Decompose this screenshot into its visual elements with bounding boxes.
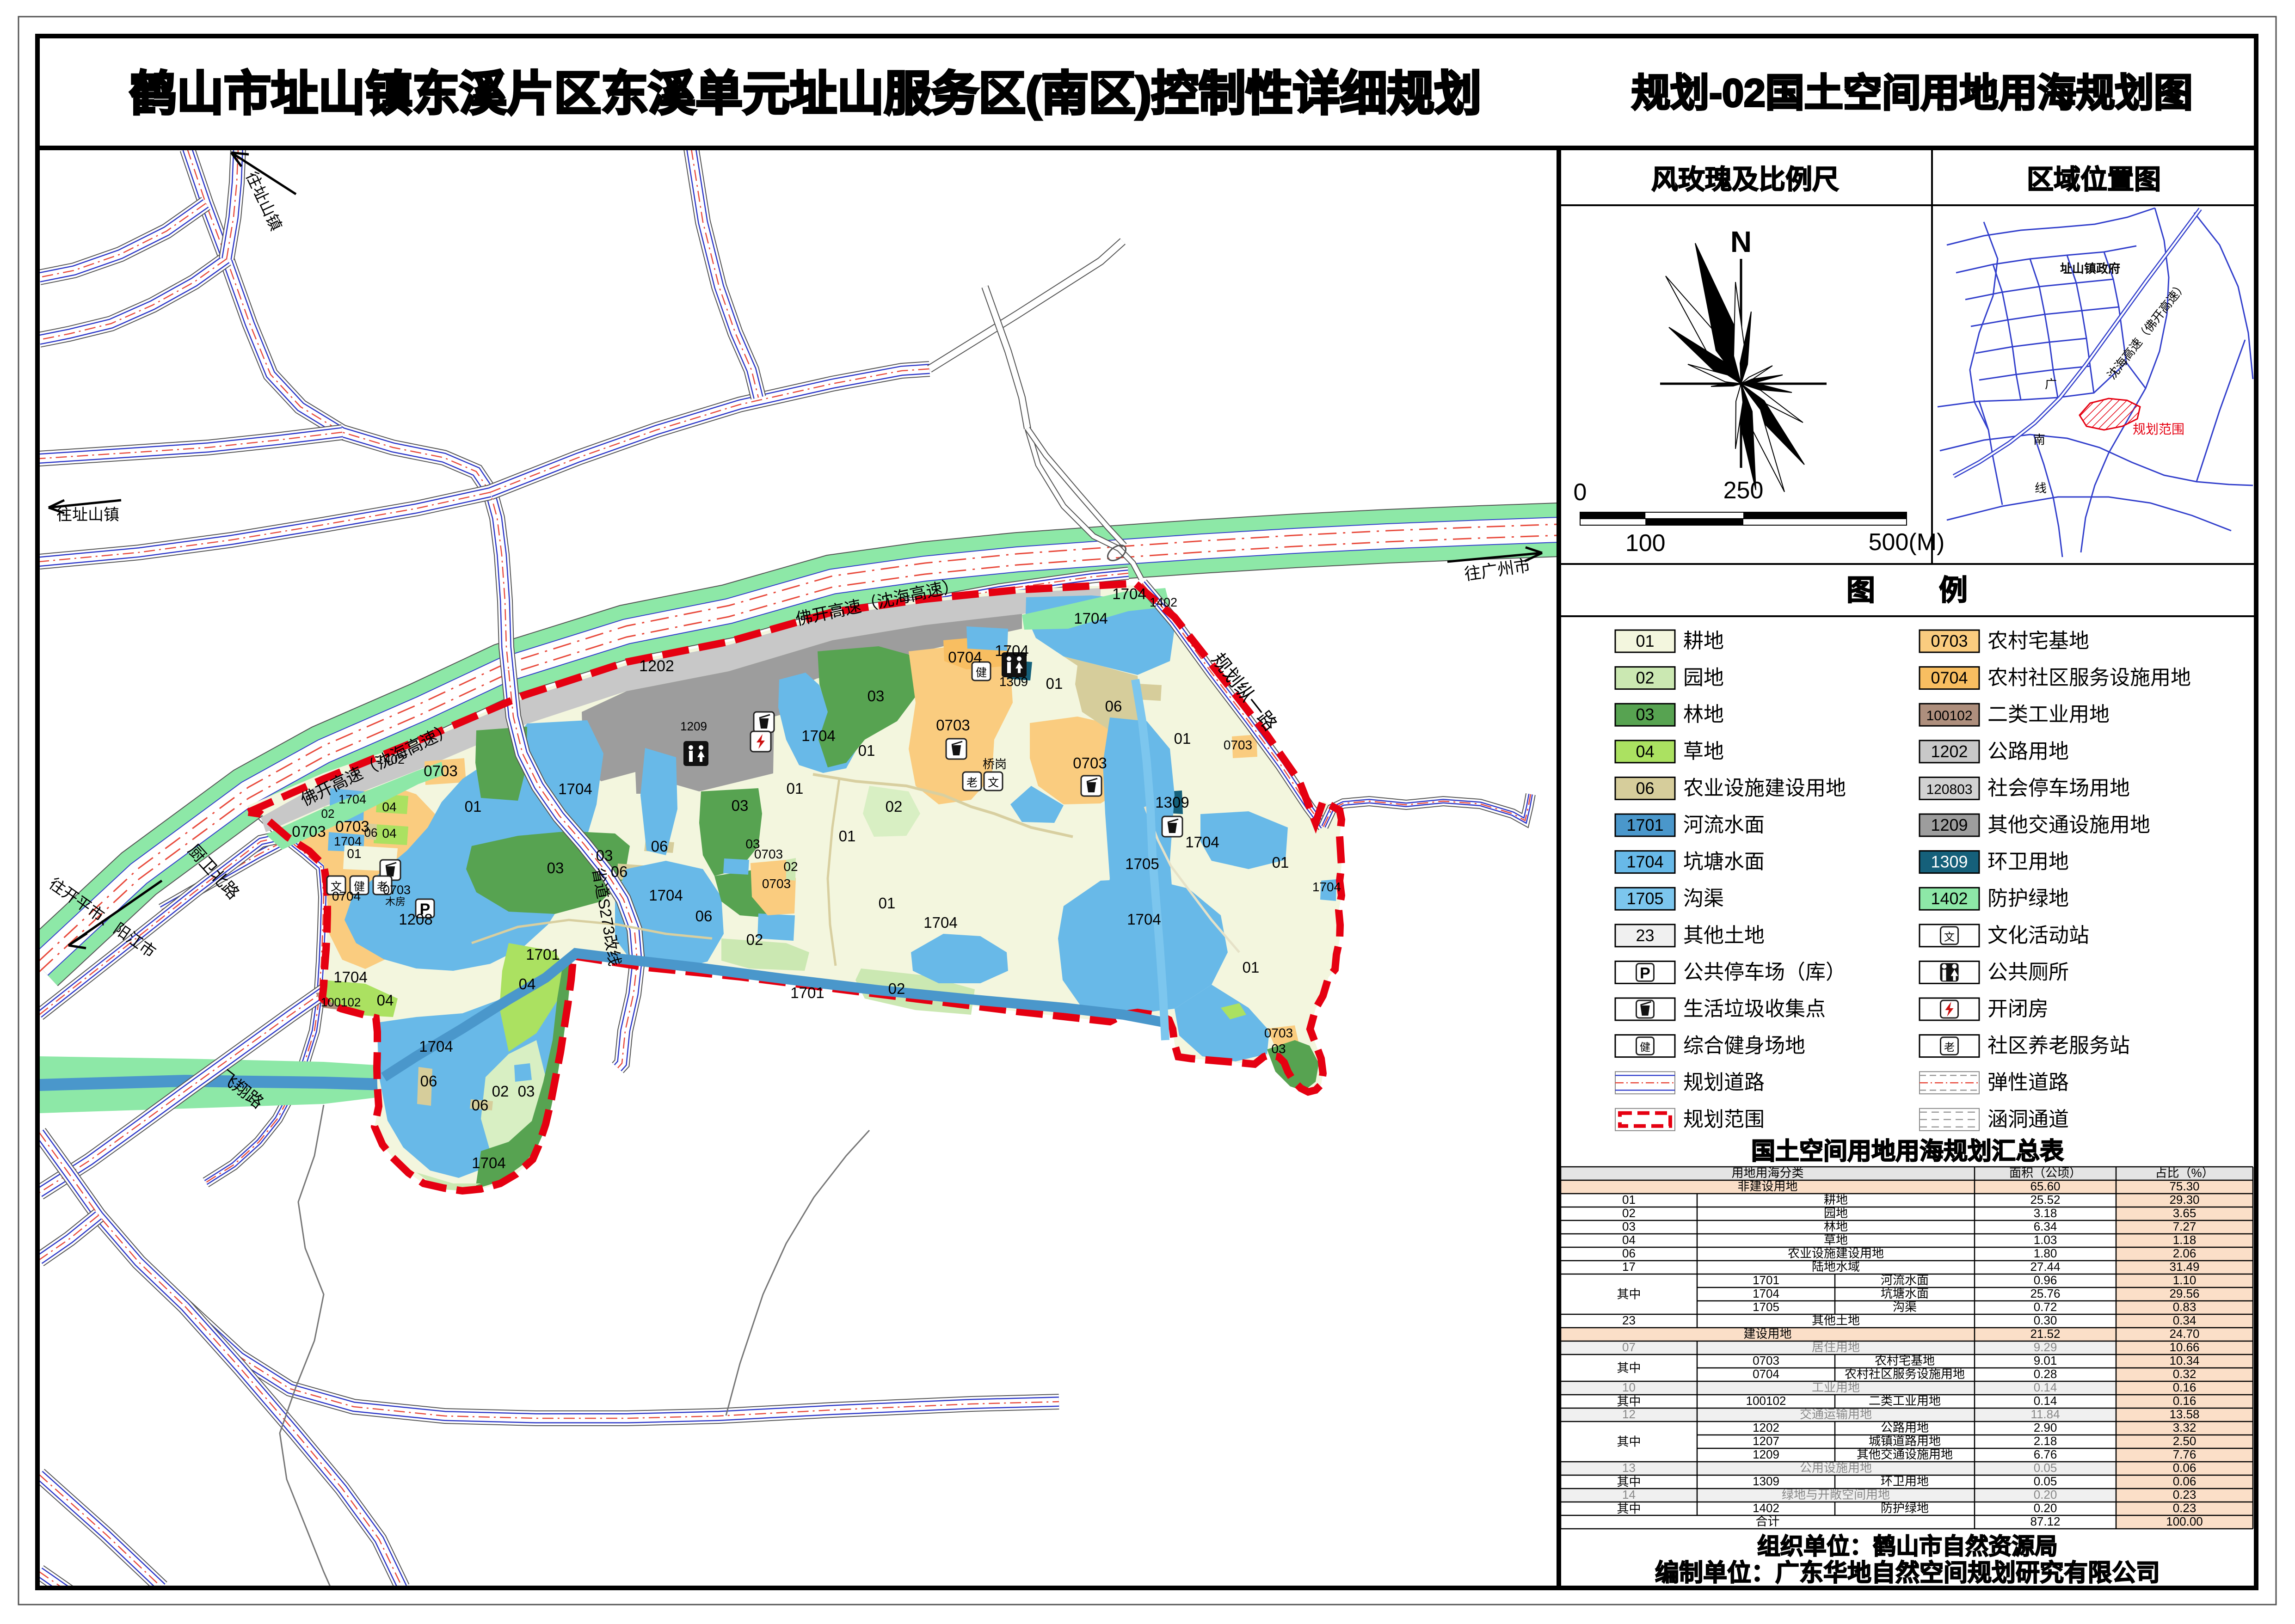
- svg-text:1.80: 1.80: [2034, 1246, 2057, 1260]
- svg-text:9.29: 9.29: [2034, 1340, 2057, 1354]
- svg-text:03: 03: [596, 847, 613, 864]
- svg-text:林地: 林地: [1824, 1220, 1848, 1233]
- svg-text:29.30: 29.30: [2169, 1193, 2199, 1207]
- svg-text:03: 03: [745, 837, 760, 851]
- svg-text:绿地与开敞空间用地: 绿地与开敞空间用地: [1782, 1488, 1890, 1501]
- svg-text:防护绿地: 防护绿地: [1987, 887, 2069, 910]
- svg-text:其中: 其中: [1617, 1435, 1641, 1449]
- svg-text:1208: 1208: [399, 911, 432, 928]
- svg-text:06: 06: [472, 1097, 489, 1114]
- svg-text:公用设施用地: 公用设施用地: [1800, 1461, 1872, 1475]
- svg-text:0704: 0704: [1931, 668, 1968, 687]
- svg-text:河流水面: 河流水面: [1881, 1273, 1929, 1287]
- svg-text:02: 02: [492, 1083, 509, 1100]
- svg-text:建设用地: 建设用地: [1743, 1327, 1791, 1341]
- svg-text:0704: 0704: [332, 889, 361, 903]
- svg-text:02: 02: [321, 807, 335, 821]
- svg-text:0703: 0703: [1264, 1026, 1293, 1040]
- svg-text:31.49: 31.49: [2169, 1260, 2199, 1274]
- svg-text:编制单位：广东华地自然空间规划研究有限公司: 编制单位：广东华地自然空间规划研究有限公司: [1655, 1560, 2160, 1587]
- svg-text:1309: 1309: [1155, 794, 1189, 811]
- svg-text:0.16: 0.16: [2173, 1394, 2197, 1408]
- svg-text:21.52: 21.52: [2030, 1327, 2060, 1341]
- svg-text:0703: 0703: [383, 883, 411, 897]
- svg-text:06: 06: [1636, 778, 1654, 797]
- svg-text:木房: 木房: [385, 896, 406, 907]
- svg-text:社会停车场用地: 社会停车场用地: [1987, 777, 2130, 799]
- svg-text:用地用海分类: 用地用海分类: [1731, 1166, 1803, 1180]
- svg-text:0.05: 0.05: [2034, 1461, 2057, 1475]
- svg-text:0.20: 0.20: [2034, 1501, 2057, 1515]
- svg-text:综合健身场地: 综合健身场地: [1683, 1035, 1805, 1057]
- svg-text:01: 01: [787, 780, 804, 797]
- svg-text:1202: 1202: [639, 657, 674, 675]
- svg-text:其中: 其中: [1617, 1502, 1641, 1516]
- svg-text:区域位置图: 区域位置图: [2027, 165, 2161, 195]
- svg-text:07: 07: [1622, 1340, 1636, 1354]
- svg-text:社区养老服务站: 社区养老服务站: [1987, 1035, 2130, 1057]
- svg-text:规划范围: 规划范围: [1683, 1108, 1765, 1131]
- svg-text:1704: 1704: [333, 968, 367, 986]
- svg-text:03: 03: [547, 859, 564, 876]
- svg-text:生活垃圾收集点: 生活垃圾收集点: [1683, 998, 1826, 1020]
- svg-text:1705: 1705: [1626, 889, 1663, 908]
- svg-text:27.44: 27.44: [2030, 1260, 2060, 1274]
- svg-text:坑塘水面: 坑塘水面: [1683, 851, 1765, 873]
- svg-text:12: 12: [1622, 1407, 1636, 1421]
- svg-text:其他交通设施用地: 其他交通设施用地: [1987, 814, 2150, 836]
- svg-text:01: 01: [1636, 631, 1654, 650]
- svg-text:1705: 1705: [1125, 855, 1159, 872]
- svg-text:公共厕所: 公共厕所: [1987, 961, 2069, 983]
- svg-text:9.01: 9.01: [2034, 1354, 2057, 1367]
- svg-text:100102: 100102: [1746, 1394, 1786, 1408]
- svg-text:0703: 0703: [1931, 631, 1968, 650]
- svg-text:1309: 1309: [1753, 1474, 1779, 1488]
- svg-text:合计: 合计: [1755, 1514, 1779, 1528]
- svg-text:桥岗: 桥岗: [983, 757, 1007, 771]
- svg-text:0703: 0703: [1224, 738, 1252, 752]
- svg-text:65.60: 65.60: [2030, 1179, 2060, 1193]
- svg-text:1704: 1704: [923, 914, 957, 931]
- svg-text:06: 06: [695, 907, 713, 925]
- svg-text:例: 例: [1939, 575, 1968, 607]
- svg-text:1309: 1309: [1931, 852, 1968, 871]
- svg-text:0703: 0703: [424, 762, 457, 779]
- svg-text:100102: 100102: [321, 995, 361, 1009]
- svg-text:2.06: 2.06: [2173, 1246, 2197, 1260]
- svg-text:02: 02: [1622, 1206, 1636, 1220]
- svg-text:0704: 0704: [1753, 1367, 1779, 1381]
- svg-text:林地: 林地: [1683, 703, 1724, 726]
- svg-text:1704: 1704: [995, 642, 1028, 659]
- svg-text:04: 04: [1622, 1233, 1636, 1247]
- svg-text:1704: 1704: [1112, 585, 1146, 602]
- svg-text:04: 04: [382, 800, 396, 814]
- svg-text:开闭房: 开闭房: [1987, 998, 2049, 1020]
- svg-text:线: 线: [2035, 481, 2047, 495]
- svg-text:0703: 0703: [1073, 754, 1107, 772]
- svg-text:涵洞通道: 涵洞通道: [1987, 1108, 2069, 1131]
- svg-text:1704: 1704: [1074, 610, 1108, 627]
- svg-text:0.32: 0.32: [2173, 1367, 2197, 1381]
- svg-text:04: 04: [519, 975, 536, 993]
- svg-text:02: 02: [783, 859, 798, 874]
- svg-text:其中: 其中: [1617, 1395, 1641, 1409]
- svg-text:0.23: 0.23: [2173, 1488, 2197, 1501]
- svg-text:1202: 1202: [1931, 742, 1968, 761]
- svg-text:75.30: 75.30: [2169, 1179, 2199, 1193]
- svg-text:其中: 其中: [1617, 1287, 1641, 1301]
- svg-text:6.34: 6.34: [2034, 1220, 2057, 1233]
- svg-text:农村宅基地: 农村宅基地: [1987, 630, 2089, 652]
- svg-text:0.05: 0.05: [2034, 1474, 2057, 1488]
- svg-text:公路用地: 公路用地: [1987, 740, 2069, 763]
- svg-text:06: 06: [651, 838, 668, 855]
- svg-text:23: 23: [1622, 1313, 1636, 1327]
- svg-text:3.32: 3.32: [2173, 1421, 2197, 1434]
- svg-text:06: 06: [364, 826, 378, 840]
- svg-text:13.58: 13.58: [2169, 1407, 2199, 1421]
- svg-text:2.50: 2.50: [2173, 1434, 2197, 1448]
- svg-text:25.52: 25.52: [2030, 1193, 2060, 1207]
- svg-text:国土空间用地用海规划汇总表: 国土空间用地用海规划汇总表: [1751, 1138, 2064, 1165]
- svg-text:1.10: 1.10: [2173, 1273, 2197, 1287]
- svg-text:01: 01: [347, 846, 361, 861]
- svg-text:弹性道路: 弹性道路: [1987, 1071, 2069, 1094]
- svg-text:沟渠: 沟渠: [1683, 887, 1724, 910]
- svg-text:01: 01: [1272, 854, 1289, 871]
- svg-text:2.18: 2.18: [2034, 1434, 2057, 1448]
- svg-text:风玫瑰及比例尺: 风玫瑰及比例尺: [1651, 165, 1839, 195]
- svg-text:0.30: 0.30: [2034, 1313, 2057, 1327]
- svg-text:交通运输用地: 交通运输用地: [1800, 1407, 1872, 1421]
- svg-text:其他交通设施用地: 其他交通设施用地: [1857, 1447, 1953, 1461]
- svg-text:1704: 1704: [649, 887, 683, 904]
- svg-text:N: N: [1730, 225, 1752, 258]
- svg-text:06: 06: [611, 863, 628, 880]
- svg-text:占比（%）: 占比（%）: [2155, 1166, 2214, 1180]
- svg-text:鹤山市址山镇东溪片区东溪单元址山服务区(南区)控制性详细规划: 鹤山市址山镇东溪片区东溪单元址山服务区(南区)控制性详细规划: [129, 67, 1482, 120]
- svg-text:06: 06: [1622, 1246, 1636, 1260]
- svg-text:0.14: 0.14: [2034, 1380, 2057, 1394]
- svg-text:文化活动站: 文化活动站: [1987, 924, 2089, 947]
- svg-text:04: 04: [377, 992, 394, 1009]
- svg-text:农村社区服务设施用地: 农村社区服务设施用地: [1987, 667, 2191, 689]
- svg-text:二类工业用地: 二类工业用地: [1869, 1394, 1941, 1408]
- svg-text:02: 02: [888, 980, 905, 997]
- svg-text:100: 100: [1625, 530, 1666, 557]
- svg-text:1402: 1402: [1931, 889, 1968, 908]
- svg-text:01: 01: [465, 798, 482, 815]
- svg-text:10.66: 10.66: [2169, 1340, 2199, 1354]
- svg-text:1704: 1704: [558, 780, 592, 797]
- svg-text:3.18: 3.18: [2034, 1206, 2057, 1220]
- svg-text:面积（公顷）: 面积（公顷）: [2009, 1166, 2081, 1180]
- svg-text:其他土地: 其他土地: [1683, 924, 1765, 947]
- svg-text:10.34: 10.34: [2169, 1354, 2199, 1367]
- svg-text:1701: 1701: [1753, 1273, 1779, 1287]
- svg-text:03: 03: [518, 1083, 535, 1100]
- svg-text:坑塘水面: 坑塘水面: [1881, 1287, 1929, 1300]
- svg-text:03: 03: [732, 797, 749, 814]
- svg-text:规划范围: 规划范围: [2133, 422, 2184, 436]
- svg-text:1704: 1704: [419, 1038, 453, 1055]
- svg-text:其中: 其中: [1617, 1475, 1641, 1489]
- svg-text:健: 健: [976, 667, 987, 679]
- svg-text:P: P: [1640, 964, 1650, 982]
- svg-text:0.72: 0.72: [2034, 1300, 2057, 1314]
- svg-text:14: 14: [1622, 1488, 1636, 1501]
- svg-text:公共停车场（库）: 公共停车场（库）: [1683, 961, 1846, 983]
- svg-text:03: 03: [1622, 1220, 1636, 1233]
- svg-text:二类工业用地: 二类工业用地: [1987, 703, 2110, 726]
- svg-text:13: 13: [1622, 1461, 1636, 1475]
- svg-text:1705: 1705: [1753, 1300, 1779, 1314]
- svg-text:1402: 1402: [1753, 1501, 1779, 1515]
- svg-text:文: 文: [988, 777, 999, 789]
- svg-text:0: 0: [1574, 479, 1587, 506]
- svg-text:0.20: 0.20: [2034, 1488, 2057, 1501]
- svg-text:03: 03: [1636, 705, 1654, 724]
- svg-text:1209: 1209: [1931, 815, 1968, 834]
- svg-text:1.03: 1.03: [2034, 1233, 2057, 1247]
- svg-text:公路用地: 公路用地: [1881, 1421, 1929, 1434]
- svg-text:农村宅基地: 农村宅基地: [1875, 1354, 1935, 1367]
- svg-text:17: 17: [1622, 1260, 1636, 1274]
- svg-text:园地: 园地: [1824, 1206, 1848, 1220]
- svg-text:0704: 0704: [948, 649, 982, 666]
- svg-text:06: 06: [420, 1072, 437, 1090]
- svg-text:100102: 100102: [1926, 708, 1972, 723]
- svg-text:01: 01: [1622, 1193, 1636, 1207]
- svg-text:29.56: 29.56: [2169, 1287, 2199, 1300]
- svg-text:0.28: 0.28: [2034, 1367, 2057, 1381]
- svg-text:23: 23: [1636, 926, 1654, 945]
- svg-text:2.90: 2.90: [2034, 1421, 2057, 1434]
- svg-text:01: 01: [879, 895, 896, 912]
- svg-text:100.00: 100.00: [2166, 1514, 2203, 1528]
- svg-text:1202: 1202: [1753, 1421, 1779, 1434]
- svg-text:农业设施建设用地: 农业设施建设用地: [1683, 777, 1846, 799]
- svg-text:1704: 1704: [1312, 880, 1341, 894]
- svg-text:其中: 其中: [1617, 1361, 1641, 1375]
- svg-text:11.84: 11.84: [2030, 1407, 2060, 1421]
- svg-text:0703: 0703: [292, 823, 326, 840]
- svg-text:1207: 1207: [1753, 1434, 1779, 1448]
- svg-text:1701: 1701: [790, 984, 824, 1001]
- svg-text:组织单位：鹤山市自然资源局: 组织单位：鹤山市自然资源局: [1757, 1533, 2058, 1559]
- svg-text:园地: 园地: [1683, 667, 1724, 689]
- svg-text:居住用地: 居住用地: [1812, 1340, 1860, 1354]
- svg-text:01: 01: [839, 827, 856, 845]
- svg-text:图: 图: [1846, 575, 1875, 607]
- svg-text:陆地水域: 陆地水域: [1812, 1260, 1860, 1274]
- svg-text:环卫用地: 环卫用地: [1881, 1474, 1929, 1488]
- svg-text:01: 01: [858, 742, 875, 759]
- svg-text:1704: 1704: [1185, 833, 1219, 851]
- svg-text:老: 老: [1944, 1041, 1955, 1053]
- svg-text:广: 广: [2045, 377, 2057, 391]
- svg-text:6.76: 6.76: [2034, 1447, 2057, 1461]
- svg-text:文: 文: [1944, 931, 1955, 943]
- svg-text:04: 04: [382, 826, 396, 840]
- svg-text:沟渠: 沟渠: [1893, 1300, 1917, 1314]
- svg-text:02: 02: [746, 931, 763, 948]
- svg-text:03: 03: [868, 687, 885, 705]
- svg-text:0.06: 0.06: [2173, 1461, 2197, 1475]
- svg-text:1704: 1704: [1626, 852, 1663, 871]
- svg-text:0.06: 0.06: [2173, 1474, 2197, 1488]
- svg-text:河流水面: 河流水面: [1683, 814, 1765, 836]
- svg-text:工业用地: 工业用地: [1812, 1380, 1860, 1394]
- svg-text:0.34: 0.34: [2173, 1313, 2197, 1327]
- svg-text:南: 南: [2033, 433, 2045, 447]
- svg-text:1209: 1209: [680, 719, 707, 733]
- svg-text:06: 06: [1105, 698, 1122, 715]
- svg-text:1701: 1701: [526, 946, 560, 963]
- svg-text:0.14: 0.14: [2034, 1394, 2057, 1408]
- svg-text:120803: 120803: [1926, 782, 1972, 797]
- svg-text:往址山镇: 往址山镇: [56, 506, 119, 524]
- svg-text:0703: 0703: [936, 717, 970, 734]
- svg-text:非建设用地: 非建设用地: [1737, 1179, 1797, 1193]
- svg-text:耕地: 耕地: [1824, 1193, 1848, 1207]
- svg-text:25.76: 25.76: [2030, 1287, 2060, 1300]
- svg-text:0703: 0703: [762, 876, 791, 891]
- svg-text:02: 02: [886, 798, 903, 815]
- svg-text:0.23: 0.23: [2173, 1501, 2197, 1515]
- svg-text:健: 健: [1640, 1041, 1650, 1053]
- svg-text:03: 03: [1271, 1042, 1286, 1056]
- svg-text:10: 10: [1622, 1380, 1636, 1394]
- svg-text:01: 01: [1243, 959, 1260, 976]
- svg-text:0.96: 0.96: [2034, 1273, 2057, 1287]
- svg-text:1.18: 1.18: [2173, 1233, 2197, 1247]
- svg-text:老: 老: [966, 777, 978, 789]
- svg-text:规划道路: 规划道路: [1683, 1071, 1765, 1094]
- svg-text:0703: 0703: [1753, 1354, 1779, 1367]
- svg-text:02: 02: [1636, 668, 1654, 687]
- svg-text:其他土地: 其他土地: [1812, 1313, 1860, 1327]
- svg-text:7.27: 7.27: [2173, 1220, 2197, 1233]
- svg-text:农村社区服务设施用地: 农村社区服务设施用地: [1845, 1367, 1965, 1381]
- svg-text:草地: 草地: [1824, 1233, 1848, 1247]
- svg-text:1701: 1701: [1626, 815, 1663, 834]
- svg-text:址山镇政府: 址山镇政府: [2060, 262, 2120, 276]
- svg-text:87.12: 87.12: [2030, 1514, 2060, 1528]
- svg-text:1704: 1704: [1753, 1287, 1779, 1300]
- svg-text:250: 250: [1723, 477, 1764, 504]
- svg-text:城镇道路用地: 城镇道路用地: [1869, 1434, 1941, 1448]
- svg-text:1402: 1402: [1150, 595, 1177, 609]
- svg-text:耕地: 耕地: [1683, 630, 1724, 652]
- svg-text:规划-02国土空间用地用海规划图: 规划-02国土空间用地用海规划图: [1631, 71, 2192, 115]
- svg-text:1704: 1704: [1127, 911, 1161, 928]
- svg-text:1309: 1309: [999, 674, 1028, 689]
- svg-text:0.16: 0.16: [2173, 1380, 2197, 1394]
- svg-text:1209: 1209: [1753, 1447, 1779, 1461]
- svg-text:0.83: 0.83: [2173, 1300, 2197, 1314]
- svg-text:3.65: 3.65: [2173, 1206, 2197, 1220]
- svg-text:01: 01: [1174, 730, 1191, 747]
- svg-text:500(M): 500(M): [1869, 529, 1945, 556]
- svg-text:24.70: 24.70: [2169, 1327, 2199, 1341]
- svg-text:1704: 1704: [338, 792, 366, 806]
- svg-text:1704: 1704: [472, 1154, 505, 1171]
- svg-text:1704: 1704: [801, 727, 835, 744]
- svg-text:04: 04: [1636, 742, 1654, 761]
- svg-text:01: 01: [1046, 675, 1063, 692]
- svg-text:环卫用地: 环卫用地: [1987, 851, 2069, 873]
- svg-text:防护绿地: 防护绿地: [1881, 1501, 1929, 1515]
- svg-text:草地: 草地: [1683, 740, 1724, 763]
- svg-text:农业设施建设用地: 农业设施建设用地: [1788, 1246, 1884, 1260]
- svg-text:7.76: 7.76: [2173, 1447, 2197, 1461]
